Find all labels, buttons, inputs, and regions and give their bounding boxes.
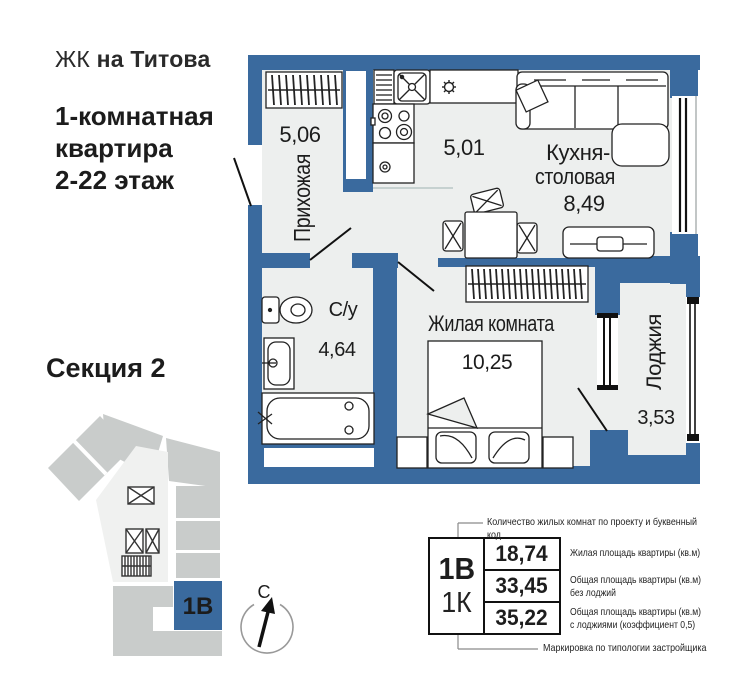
washbasin-icon bbox=[262, 338, 294, 389]
living-area-label: Жилая площадь квартиры (кв.м) bbox=[570, 547, 701, 560]
hallway-wardrobe-icon bbox=[266, 72, 342, 108]
compass-needle bbox=[259, 612, 268, 647]
unit-type: 1К bbox=[441, 588, 471, 618]
toilet-icon bbox=[262, 297, 312, 323]
compass: С bbox=[241, 582, 293, 653]
tv-stand-icon bbox=[563, 227, 654, 258]
floor-plan: 5,06 Прихожая 5,01 Кухня- столовая 8,49 … bbox=[234, 55, 700, 484]
hallway-area: 5,06 bbox=[279, 122, 320, 147]
floorplan-page: ЖК на Титова 1-комнатная квартира 2-22 э… bbox=[0, 0, 750, 700]
living-loggia-window bbox=[597, 313, 618, 390]
hallway-label: Прихожая bbox=[289, 154, 315, 242]
dish-rack-icon bbox=[374, 70, 394, 104]
pillow-icon bbox=[489, 432, 529, 463]
pillow-icon bbox=[436, 432, 476, 463]
bathtub-icon bbox=[258, 393, 374, 444]
legend-bottom-note: Маркировка по типологии застройщика bbox=[543, 642, 713, 655]
kitchen-cabinet-icon bbox=[373, 143, 414, 183]
elevator-icon bbox=[128, 487, 154, 504]
kitchen-dining-label-2: столовая bbox=[535, 164, 615, 189]
total-area-with-loggia-label: Общая площадь квартиры (кв.м) с лоджиями… bbox=[570, 606, 705, 631]
nightstand-icon bbox=[543, 437, 573, 468]
unit-code-cell: 1В 1К bbox=[428, 537, 485, 635]
unit-code: 1В bbox=[438, 553, 474, 584]
vent-shaft bbox=[346, 71, 366, 179]
sink-icon bbox=[394, 70, 430, 104]
kitchen-dining-label-1: Кухня- bbox=[546, 140, 610, 165]
living-room-label: Жилая комната bbox=[428, 311, 555, 336]
burner-icon bbox=[442, 80, 456, 94]
area-values: 18,74 33,45 35,22 bbox=[483, 537, 561, 635]
unit-code-label: 1В bbox=[183, 593, 214, 620]
north-label: С bbox=[258, 582, 271, 602]
total-area-label: Общая площадь квартиры (кв.м) без лоджий bbox=[570, 574, 701, 599]
living-room-area: 10,25 bbox=[462, 351, 513, 374]
total-area-value: 33,45 bbox=[483, 569, 561, 603]
kitchen-zone-area: 5,01 bbox=[443, 135, 484, 160]
table-icon bbox=[465, 212, 517, 258]
elevator-icon bbox=[126, 529, 143, 553]
section-diagram: 1В bbox=[48, 414, 222, 656]
living-wardrobe-icon bbox=[466, 266, 588, 302]
bathroom-label: С/у bbox=[329, 299, 358, 321]
living-area-value: 18,74 bbox=[483, 537, 561, 571]
stairs-icon bbox=[122, 556, 151, 576]
stove-icon bbox=[371, 104, 414, 143]
elevator-icon bbox=[146, 529, 159, 553]
nightstand-icon bbox=[397, 437, 427, 468]
kitchen-dining-area: 8,49 bbox=[563, 191, 604, 216]
legend-top-note: Количество жилых комнат по проекту и бук… bbox=[487, 516, 708, 541]
loggia-label: Лоджия bbox=[643, 314, 666, 390]
wall-niche bbox=[264, 448, 374, 467]
chair-icon bbox=[517, 223, 537, 253]
unit-highlight-block: 1В bbox=[174, 581, 222, 630]
kitchen-window bbox=[672, 96, 698, 234]
loggia-window bbox=[686, 297, 700, 443]
chair-icon bbox=[443, 221, 463, 251]
total-area-with-loggia-value: 35,22 bbox=[483, 601, 561, 635]
bathroom-area: 4,64 bbox=[318, 339, 356, 361]
loggia-area: 3,53 bbox=[637, 407, 675, 429]
